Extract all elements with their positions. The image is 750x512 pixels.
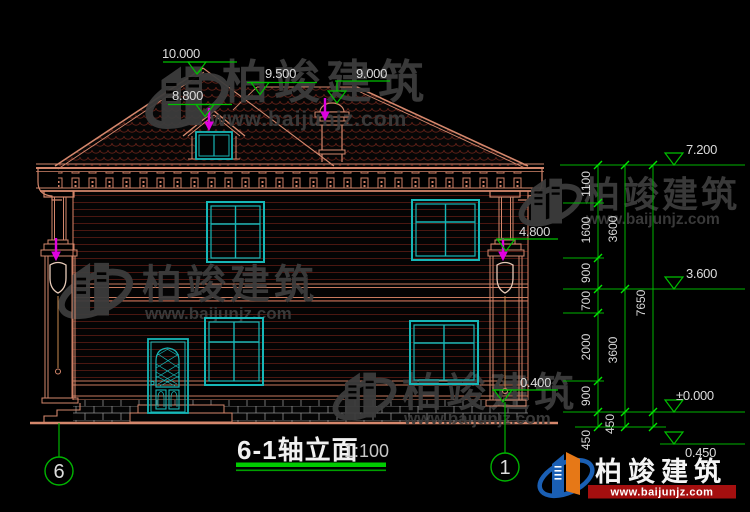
siding-lower [73,300,528,381]
dim-900-upper: 900 [579,263,593,283]
dim-450-col2: 450 [603,414,617,434]
drawing-canvas: 柏竣建筑 www.baijunjz.com 柏竣建筑 www.baijunjz.… [0,0,750,512]
drop-circle-left [56,369,61,374]
title-block: 6-1轴立面 1:100 [236,435,389,471]
dim-1600: 1600 [579,216,593,243]
watermark-right: 柏竣建筑 www.baijunjz.com [516,174,740,231]
dim-7650: 7650 [634,289,648,316]
dim-2000: 2000 [579,333,593,360]
axis-label-6: 6 [53,461,64,483]
dim-450-col1: 450 [579,430,593,450]
dim-900-lower: 900 [579,386,593,406]
level-eave: 7.200 [686,142,717,157]
door-step-2 [130,413,232,422]
drawing-scale: 1:100 [344,441,389,461]
cad-elevation-drawing: 柏竣建筑 www.baijunjz.com 柏竣建筑 www.baijunjz.… [0,0,750,512]
level-porch: 0.400 [520,375,551,390]
level-floor2: 3.600 [686,266,717,281]
watermark-url: www.baijunjz.com [144,304,292,323]
level-zero: ±0.000 [676,388,714,403]
watermark-name: 柏竣建筑 [142,263,318,307]
door-knob [151,381,154,384]
logo-tower-orange [566,452,580,495]
level-dormer: 8.800 [172,88,203,103]
dim-700: 700 [579,291,593,311]
cornice-ornaments [58,172,522,188]
dim-3600-upper: 3600 [606,215,620,242]
watermark-url: www.baijunjz.com [209,108,407,131]
drawing-title: 6-1轴立面 [237,435,359,465]
logo-name: 柏竣建筑 [595,456,727,487]
level-chimney: 9.000 [356,66,387,81]
dim-1100: 1100 [579,171,593,197]
title-underline-thick [236,463,386,468]
level-ridge: 9.500 [265,66,296,81]
brand-logo: 柏竣建筑 www.baijunjz.com [534,452,736,503]
watermark-name: 柏竣建筑 [584,174,740,215]
shield-ornament-left [50,263,66,294]
watermark-url: www.baijunjz.com [403,409,551,428]
axis-left: 6 [45,423,73,485]
title-underline-thin [236,470,386,472]
axis-label-1: 1 [499,457,510,479]
level-capital: 4.800 [519,224,550,239]
logo-url: www.baijunjz.com [610,487,714,499]
watermark-left: 柏竣建筑 www.baijunjz.com [55,263,318,325]
level-peak: 10.000 [162,46,200,61]
dim-3600-lower: 3600 [606,336,620,363]
